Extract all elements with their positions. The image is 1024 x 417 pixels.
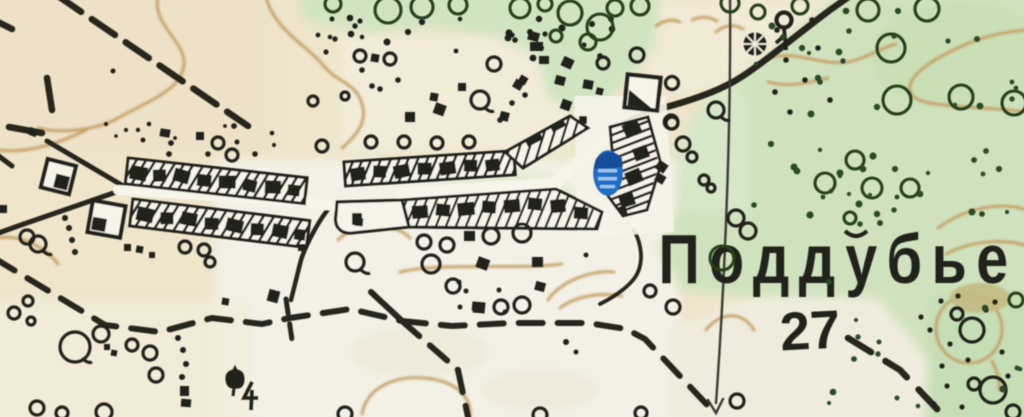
svg-text:Поддубье: Поддубье xyxy=(658,220,1017,299)
svg-text:27: 27 xyxy=(779,299,842,362)
